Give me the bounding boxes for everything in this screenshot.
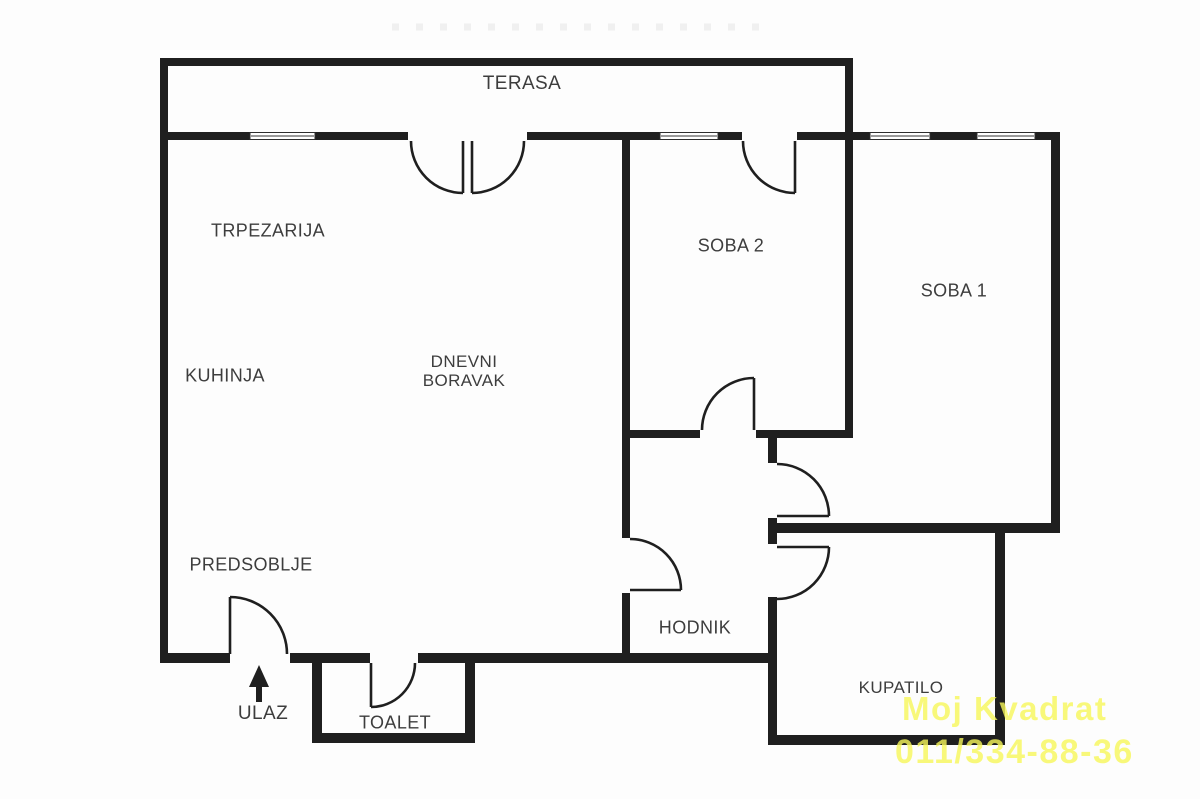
door-toalet [371,663,415,707]
wall-toalet-bottom [312,733,475,743]
door-entrance [230,597,287,654]
entrance-arrow-icon [249,665,269,702]
wall-bottom-segment [160,653,230,663]
wall-terrace-top [160,58,853,66]
wall-top-segment [853,132,870,140]
wall-bottom-segment [290,653,370,663]
wall-toalet-left [312,663,322,743]
room-label-soba2: SOBA 2 [698,236,764,257]
door-predsoblje-hodnik [630,539,681,590]
wall-top-segment [315,132,408,140]
wall-top-segment [930,132,977,140]
entrance-label: ULAZ [238,703,288,725]
door-terrace-french [411,141,524,193]
room-label-dnevni-line2: BORAVAK [423,371,505,390]
floorplan-canvas: TERASA TRPEZARIJA SOBA 2 SOBA 1 KUHINJA … [0,0,1200,799]
window-soba2 [660,133,718,140]
wall-top-segment [527,132,660,140]
wall-soba1-bottom [768,523,1060,533]
room-label-predsoblje: PREDSOBLJE [189,555,312,576]
wall-top-segment [797,132,853,140]
wall-hodnik-right [768,438,777,463]
room-label-terasa: TERASA [483,73,561,95]
wall-toalet-right [465,663,475,743]
wall-soba2-bottom [756,430,853,438]
wall-hodnik-right [768,597,777,745]
room-label-trpezarija: TRPEZARIJA [211,221,325,242]
door-hodnik-soba1 [777,464,829,516]
wall-living-hodnik [622,140,630,538]
door-hodnik-kupatilo [777,547,829,599]
wall-top-segment [168,132,250,140]
room-label-hodnik: HODNIK [659,618,731,639]
room-label-dnevni-boravak: DNEVNI BORAVAK [423,352,505,390]
floorplan-drawing [0,0,1200,799]
watermark-phone: 011/334-88-36 [895,733,1134,772]
window-soba1-left [870,133,930,140]
wall-outer-right [1051,132,1060,533]
window-kitchen [250,133,315,140]
wall-bottom-segment [418,653,777,663]
wall-soba2-bottom [622,430,700,438]
room-label-dnevni-line1: DNEVNI [423,352,505,371]
watermark-brand: Moj Kvadrat [902,690,1107,728]
door-terrace-soba2 [743,141,795,193]
wall-outer-left [160,58,168,663]
door-soba2-hodnik [702,378,754,430]
room-label-kuhinja: KUHINJA [185,366,265,387]
window-soba1-right [977,133,1035,140]
wall-top-segment [718,132,742,140]
wall-soba1-soba2-divider [845,58,853,438]
room-label-toalet: TOALET [359,713,431,734]
wall-living-hodnik [622,593,630,660]
room-label-soba1: SOBA 1 [921,281,987,302]
